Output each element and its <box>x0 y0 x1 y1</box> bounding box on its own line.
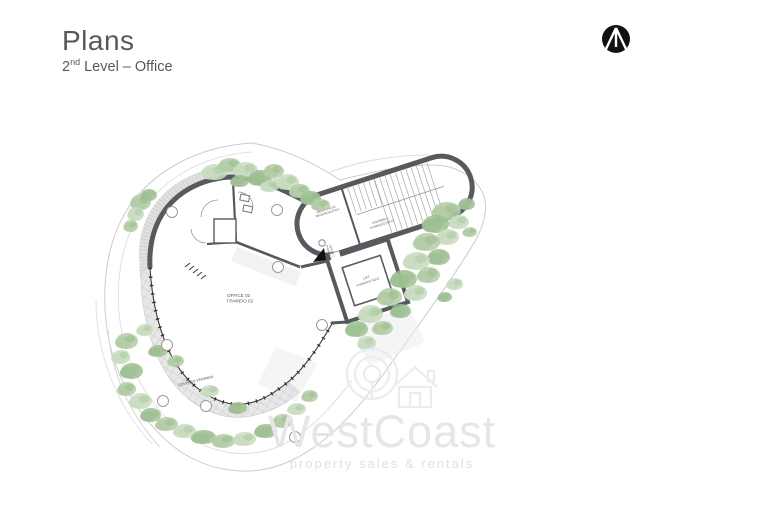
foliage-blob <box>165 419 175 426</box>
foliage-blob <box>320 201 328 207</box>
north-arrow-icon <box>601 24 631 59</box>
wc-fixture <box>243 205 253 213</box>
office-label-gr: ΓΡΑΦΕΙΟ 02 <box>227 299 254 304</box>
foliage-blob <box>427 269 437 277</box>
foliage-blob <box>366 338 374 345</box>
foliage-blob <box>466 200 473 206</box>
foliage-blob <box>126 384 134 391</box>
foliage-blob <box>144 326 151 332</box>
foliage-blob <box>286 176 296 184</box>
title-block: Plans 2nd Level – Office <box>62 26 173 75</box>
foliage-blob <box>469 228 475 233</box>
foliage-blob <box>382 323 391 330</box>
foliage-blob <box>414 287 424 295</box>
foliage-blob <box>120 352 128 359</box>
north-arrow-svg <box>601 24 631 54</box>
foliage-blob <box>437 251 447 259</box>
foliage-blob <box>243 434 253 441</box>
foliage-blob <box>125 335 135 343</box>
foliage-blob <box>237 404 245 410</box>
small-room <box>214 219 236 243</box>
foliage-blob <box>282 416 291 423</box>
foliage-blob <box>402 272 414 281</box>
foliage-blob <box>150 410 159 417</box>
foliage-blob <box>415 254 427 263</box>
foliage-blob <box>309 392 316 398</box>
foliage-blob <box>175 357 182 363</box>
foliage-blob <box>446 231 456 239</box>
foliage-blob <box>130 222 136 228</box>
foliage-blob <box>299 186 308 193</box>
foliage-blob <box>425 235 437 244</box>
level-number: 2 <box>62 59 70 75</box>
foliage-blob <box>239 177 247 183</box>
foliage-blob <box>244 164 255 172</box>
foliage-blob <box>264 426 274 433</box>
foliage-blob <box>434 217 446 226</box>
floor-plan: MECHANICAL ΜΗΧΑΝΟΛΟΓΙΚΑ STAIRWELL ΚΛΙΜΑΚ… <box>0 0 760 531</box>
entry-node <box>319 240 325 246</box>
foliage-blob <box>355 323 365 331</box>
page-subtitle: 2nd Level – Office <box>62 57 173 75</box>
foliage-blob <box>202 432 213 439</box>
foliage-blob <box>310 193 319 200</box>
foliage-blob <box>130 365 140 373</box>
foliage-blob <box>445 204 458 213</box>
foliage-blob <box>148 191 155 197</box>
foliage-blob <box>273 166 282 173</box>
foliage-blob <box>388 290 399 299</box>
foliage-blob <box>222 436 232 443</box>
foliage-blob <box>209 387 217 393</box>
page-title: Plans <box>62 26 173 55</box>
foliage-blob <box>296 405 304 411</box>
office-label-en: OFFICE 02 <box>227 293 251 298</box>
foliage-blob <box>183 426 193 433</box>
foliage-blob <box>444 293 450 298</box>
foliage-blob <box>269 182 277 188</box>
foliage-blob <box>458 217 467 224</box>
wc-fixture <box>240 194 250 202</box>
level-text: Level – Office <box>80 59 172 75</box>
foliage-blob <box>369 307 380 316</box>
foliage-blob <box>454 280 461 286</box>
page: Plans 2nd Level – Office <box>0 0 760 531</box>
level-ordinal: nd <box>70 57 80 67</box>
foliage-blob <box>400 306 409 313</box>
capsule-partition <box>341 187 360 246</box>
foliage-blob <box>135 209 142 216</box>
foliage-blob <box>139 395 149 403</box>
